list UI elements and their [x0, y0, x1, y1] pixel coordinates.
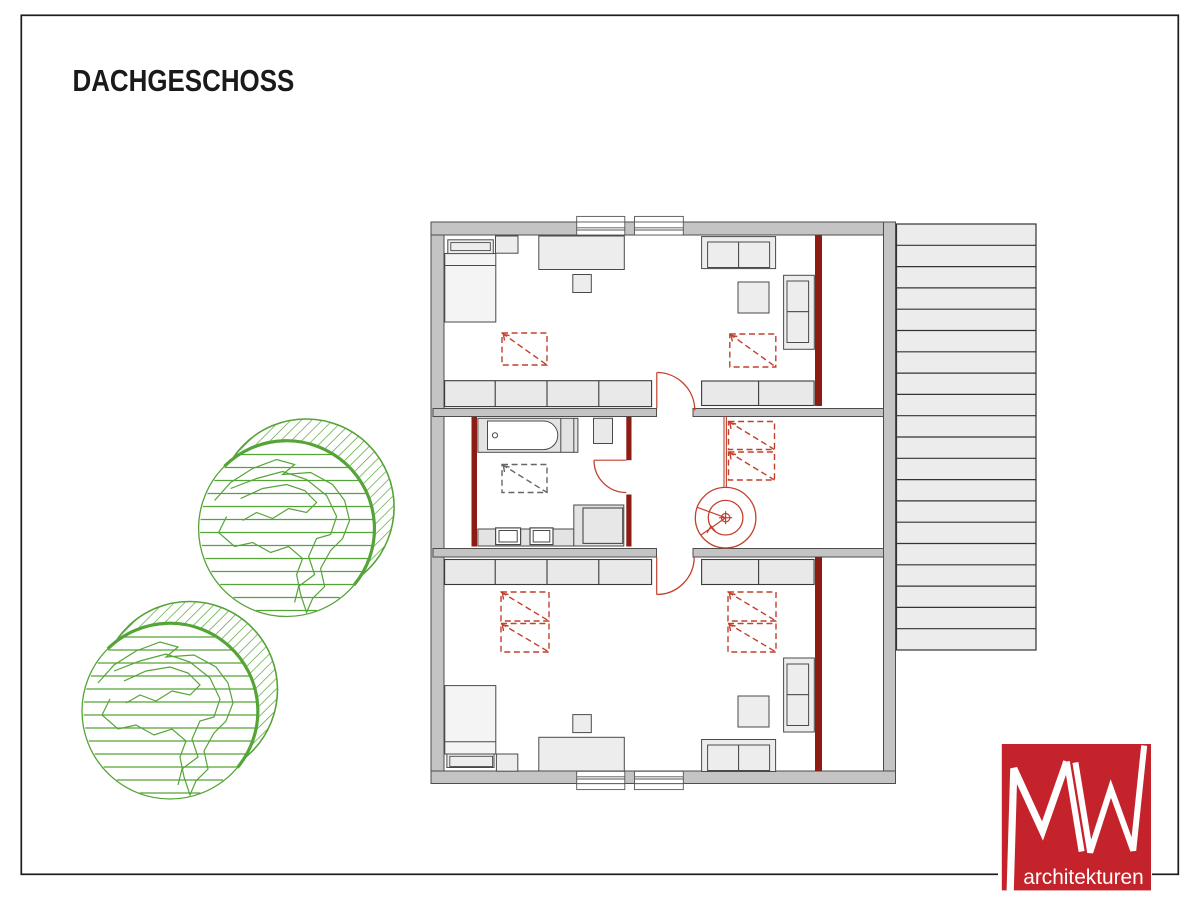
svg-text:architekturen: architekturen	[1023, 866, 1143, 889]
svg-text:DACHGESCHOSS: DACHGESCHOSS	[73, 63, 295, 97]
